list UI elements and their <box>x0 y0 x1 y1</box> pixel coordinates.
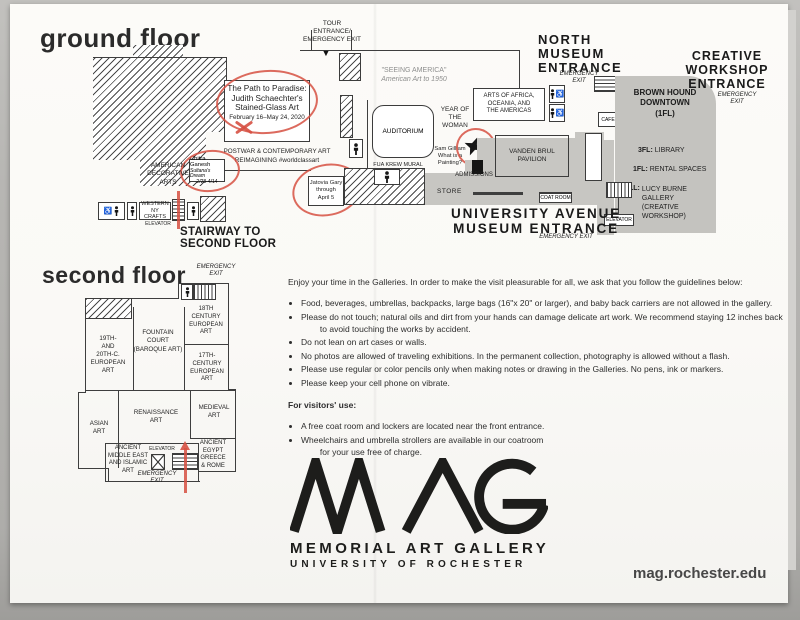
person-icon <box>130 206 135 216</box>
wall <box>105 443 106 481</box>
guideline-item: No photos are allowed of traveling exhib… <box>301 350 792 362</box>
logo-line1: MEMORIAL ART GALLERY <box>290 540 552 557</box>
lower-level-value: LUCY BURNE GALLERY (CREATIVE WORKSHOP) <box>642 185 687 221</box>
room-asian-art-label: ASIAN ART <box>90 420 109 436</box>
restroom-cell <box>349 139 363 158</box>
floor3-label: 3FL: LIBRARY <box>638 147 685 156</box>
room-auditorium: AUDITORIUM <box>372 105 434 158</box>
room-19th-20th-label: 19TH- AND 20TH-C. EUROPEAN ART <box>91 335 126 375</box>
coat-room-box: COAT ROOM <box>539 192 572 203</box>
closed-area-hatch <box>340 95 353 138</box>
store-counter <box>473 192 523 195</box>
scanned-brochure: ground floor TOUR ENTRANCE/ EMERGENCY EX… <box>0 0 800 620</box>
arts-africa-label: ARTS OF AFRICA, OCEANIA, AND THE AMERICA… <box>484 93 535 116</box>
second-emergency-exit-bottom-label: EMERGENCY EXIT <box>138 471 177 485</box>
restroom-cell: ♿ <box>98 202 125 220</box>
guidelines-list: Food, beverages, umbrellas, backpacks, l… <box>288 297 792 389</box>
restroom-cell <box>187 202 199 220</box>
restroom-cell: ♿ <box>549 104 565 122</box>
visitor-item: Wheelchairs and umbrella strollers are a… <box>301 434 792 458</box>
wall <box>190 438 236 439</box>
wheelchair-icon: ♿ <box>556 90 565 98</box>
vanden-brul-label: VANDEN BRUL PAVILION <box>509 148 555 164</box>
wall <box>178 283 229 284</box>
admissions-label: ADMISSIONS <box>455 172 493 180</box>
floor3-prefix: 3FL: <box>638 147 653 154</box>
restroom-cell <box>127 202 137 220</box>
elevator-icon <box>151 454 165 470</box>
restroom-cell <box>181 284 193 300</box>
person-icon <box>550 89 555 99</box>
floor1-value: RENTAL SPACES <box>650 166 707 173</box>
guidelines-section: Enjoy your time in the Galleries. In ord… <box>288 276 792 459</box>
red-arrow-shaft <box>184 448 187 493</box>
visitors-use-title: For visitors' use: <box>288 399 792 411</box>
wheelchair-icon: ♿ <box>556 109 565 117</box>
year-of-woman-label: YEAR OF THE WOMAN <box>441 106 470 130</box>
restroom-cell: ♿ <box>549 85 565 103</box>
room-vanden-brul: VANDEN BRUL PAVILION <box>495 135 569 177</box>
floor3-value: LIBRARY <box>655 147 685 154</box>
wall <box>78 392 79 468</box>
wall <box>198 471 236 472</box>
room-18th-century-label: 18TH CENTURY EUROPEAN ART <box>189 306 223 337</box>
western-ny-label: WESTERN NY CRAFTS <box>140 201 170 222</box>
lobby-opening <box>585 133 602 181</box>
wall <box>93 57 227 58</box>
stairway-label: STAIRWAY TO SECOND FLOOR <box>180 226 276 250</box>
store-label: STORE <box>437 188 462 196</box>
seeing-america-label: "SEEING AMERICA" <box>382 67 447 76</box>
closed-area-hatch <box>85 298 132 319</box>
room-western-ny-crafts: WESTERN NY CRAFTS <box>139 202 171 220</box>
room-fountain-court-label: FOUNTAIN COURT (BAROQUE ART) <box>134 329 183 354</box>
stairs-icon <box>606 182 632 198</box>
guidelines-intro: Enjoy your time in the Galleries. In ord… <box>288 276 792 288</box>
wall <box>228 283 229 390</box>
guideline-item: Please do not touch; natural oils and di… <box>301 311 792 335</box>
room-17th-century-label: 17TH- CENTURY EUROPEAN ART <box>190 353 224 384</box>
person-icon <box>185 287 190 297</box>
guideline-item: Please use regular or color pencils only… <box>301 363 792 375</box>
person-icon <box>550 108 555 118</box>
floor1-prefix: 1FL: <box>633 166 648 173</box>
red-x-annotation <box>234 120 256 136</box>
tour-entrance-label: TOUR ENTRANCE/ EMERGENCY EXIT <box>303 20 361 44</box>
wall <box>178 283 179 299</box>
elevator-label: ELEVATOR <box>145 221 171 227</box>
mag-monogram-icon <box>290 458 548 534</box>
wheelchair-icon: ♿ <box>104 207 113 215</box>
room-renaissance-label: RENAISSANCE ART <box>134 409 178 425</box>
guideline-item: Food, beverages, umbrellas, backpacks, l… <box>301 297 792 309</box>
room-ancient-egypt-label: ANCIENT EGYPT GREECE & ROME <box>200 440 226 470</box>
room-arts-africa: ARTS OF AFRICA, OCEANIA, AND THE AMERICA… <box>473 88 545 121</box>
wall <box>184 307 185 390</box>
creative-workshop-entrance-label: CREATIVE WORKSHOP ENTRANCE <box>686 49 769 91</box>
down-arrow-icon: ▼ <box>322 48 331 59</box>
wall <box>78 392 86 393</box>
second-emergency-exit-top-label: EMERGENCY EXIT <box>197 264 236 278</box>
wall <box>235 389 236 472</box>
guideline-item: Do not lean on art cases or walls. <box>301 336 792 348</box>
cafe-label: CAFE <box>601 117 614 123</box>
auditorium-label: AUDITORIUM <box>382 128 423 135</box>
lower-level-label: LL: LUCY BURNE GALLERY (CREATIVE WORKSHO… <box>629 185 687 221</box>
wall <box>85 390 236 391</box>
north-entrance-label: NORTH MUSEUM ENTRANCE <box>538 33 622 75</box>
floor1-label: 1FL: RENTAL SPACES <box>633 166 706 175</box>
gallery-cell <box>374 169 400 185</box>
closed-area-hatch <box>200 196 226 222</box>
wall <box>85 298 86 393</box>
stairs-icon <box>193 284 216 300</box>
wall <box>132 298 179 299</box>
logo-line2: UNIVERSITY OF ROCHESTER <box>290 559 552 570</box>
wall <box>519 50 520 88</box>
wall <box>300 50 520 51</box>
closed-area-hatch <box>339 53 361 81</box>
room-medieval-label: MEDIEVAL ART <box>199 404 230 420</box>
brown-hound-label: BROWN HOUND DOWNTOWN (1FL) <box>634 88 697 119</box>
university-entrance-label: UNIVERSITY AVENUE MUSEUM ENTRANCE <box>451 206 621 236</box>
person-icon <box>191 206 196 216</box>
website-url: mag.rochester.edu <box>633 565 766 582</box>
wall <box>184 344 228 345</box>
mag-logo: MEMORIAL ART GALLERY UNIVERSITY OF ROCHE… <box>290 458 552 570</box>
creative-emergency-exit-label: EMERGENCY EXIT <box>718 92 757 106</box>
guideline-item: Please keep your cell phone on vibrate. <box>301 377 792 389</box>
coat-room-label: COAT ROOM <box>540 195 570 201</box>
person-icon <box>114 206 119 216</box>
second-floor-title: second floor <box>42 261 186 290</box>
red-arrow-annotation <box>179 441 192 493</box>
red-line-annotation <box>177 191 180 229</box>
seeing-america-sublabel: American Art to 1950 <box>381 76 447 85</box>
wall <box>367 100 368 168</box>
elevator-label: ELEVATOR <box>149 446 175 452</box>
postwar-contemporary-label: POSTWAR & CONTEMPORARY ART REIMAGINING #… <box>224 148 331 166</box>
university-emergency-exit-label: EMERGENCY EXIT <box>539 234 593 242</box>
room-american-decorative-label: AMERICAN DECORATIVE ARTS <box>147 162 189 187</box>
north-emergency-exit-label: EMERGENCY EXIT <box>560 71 599 85</box>
person-icon <box>384 171 390 183</box>
visitors-list: A free coat room and lockers are located… <box>288 420 792 458</box>
visitor-item: A free coat room and lockers are located… <box>301 420 792 432</box>
wall <box>190 390 191 438</box>
person-icon <box>353 143 359 155</box>
